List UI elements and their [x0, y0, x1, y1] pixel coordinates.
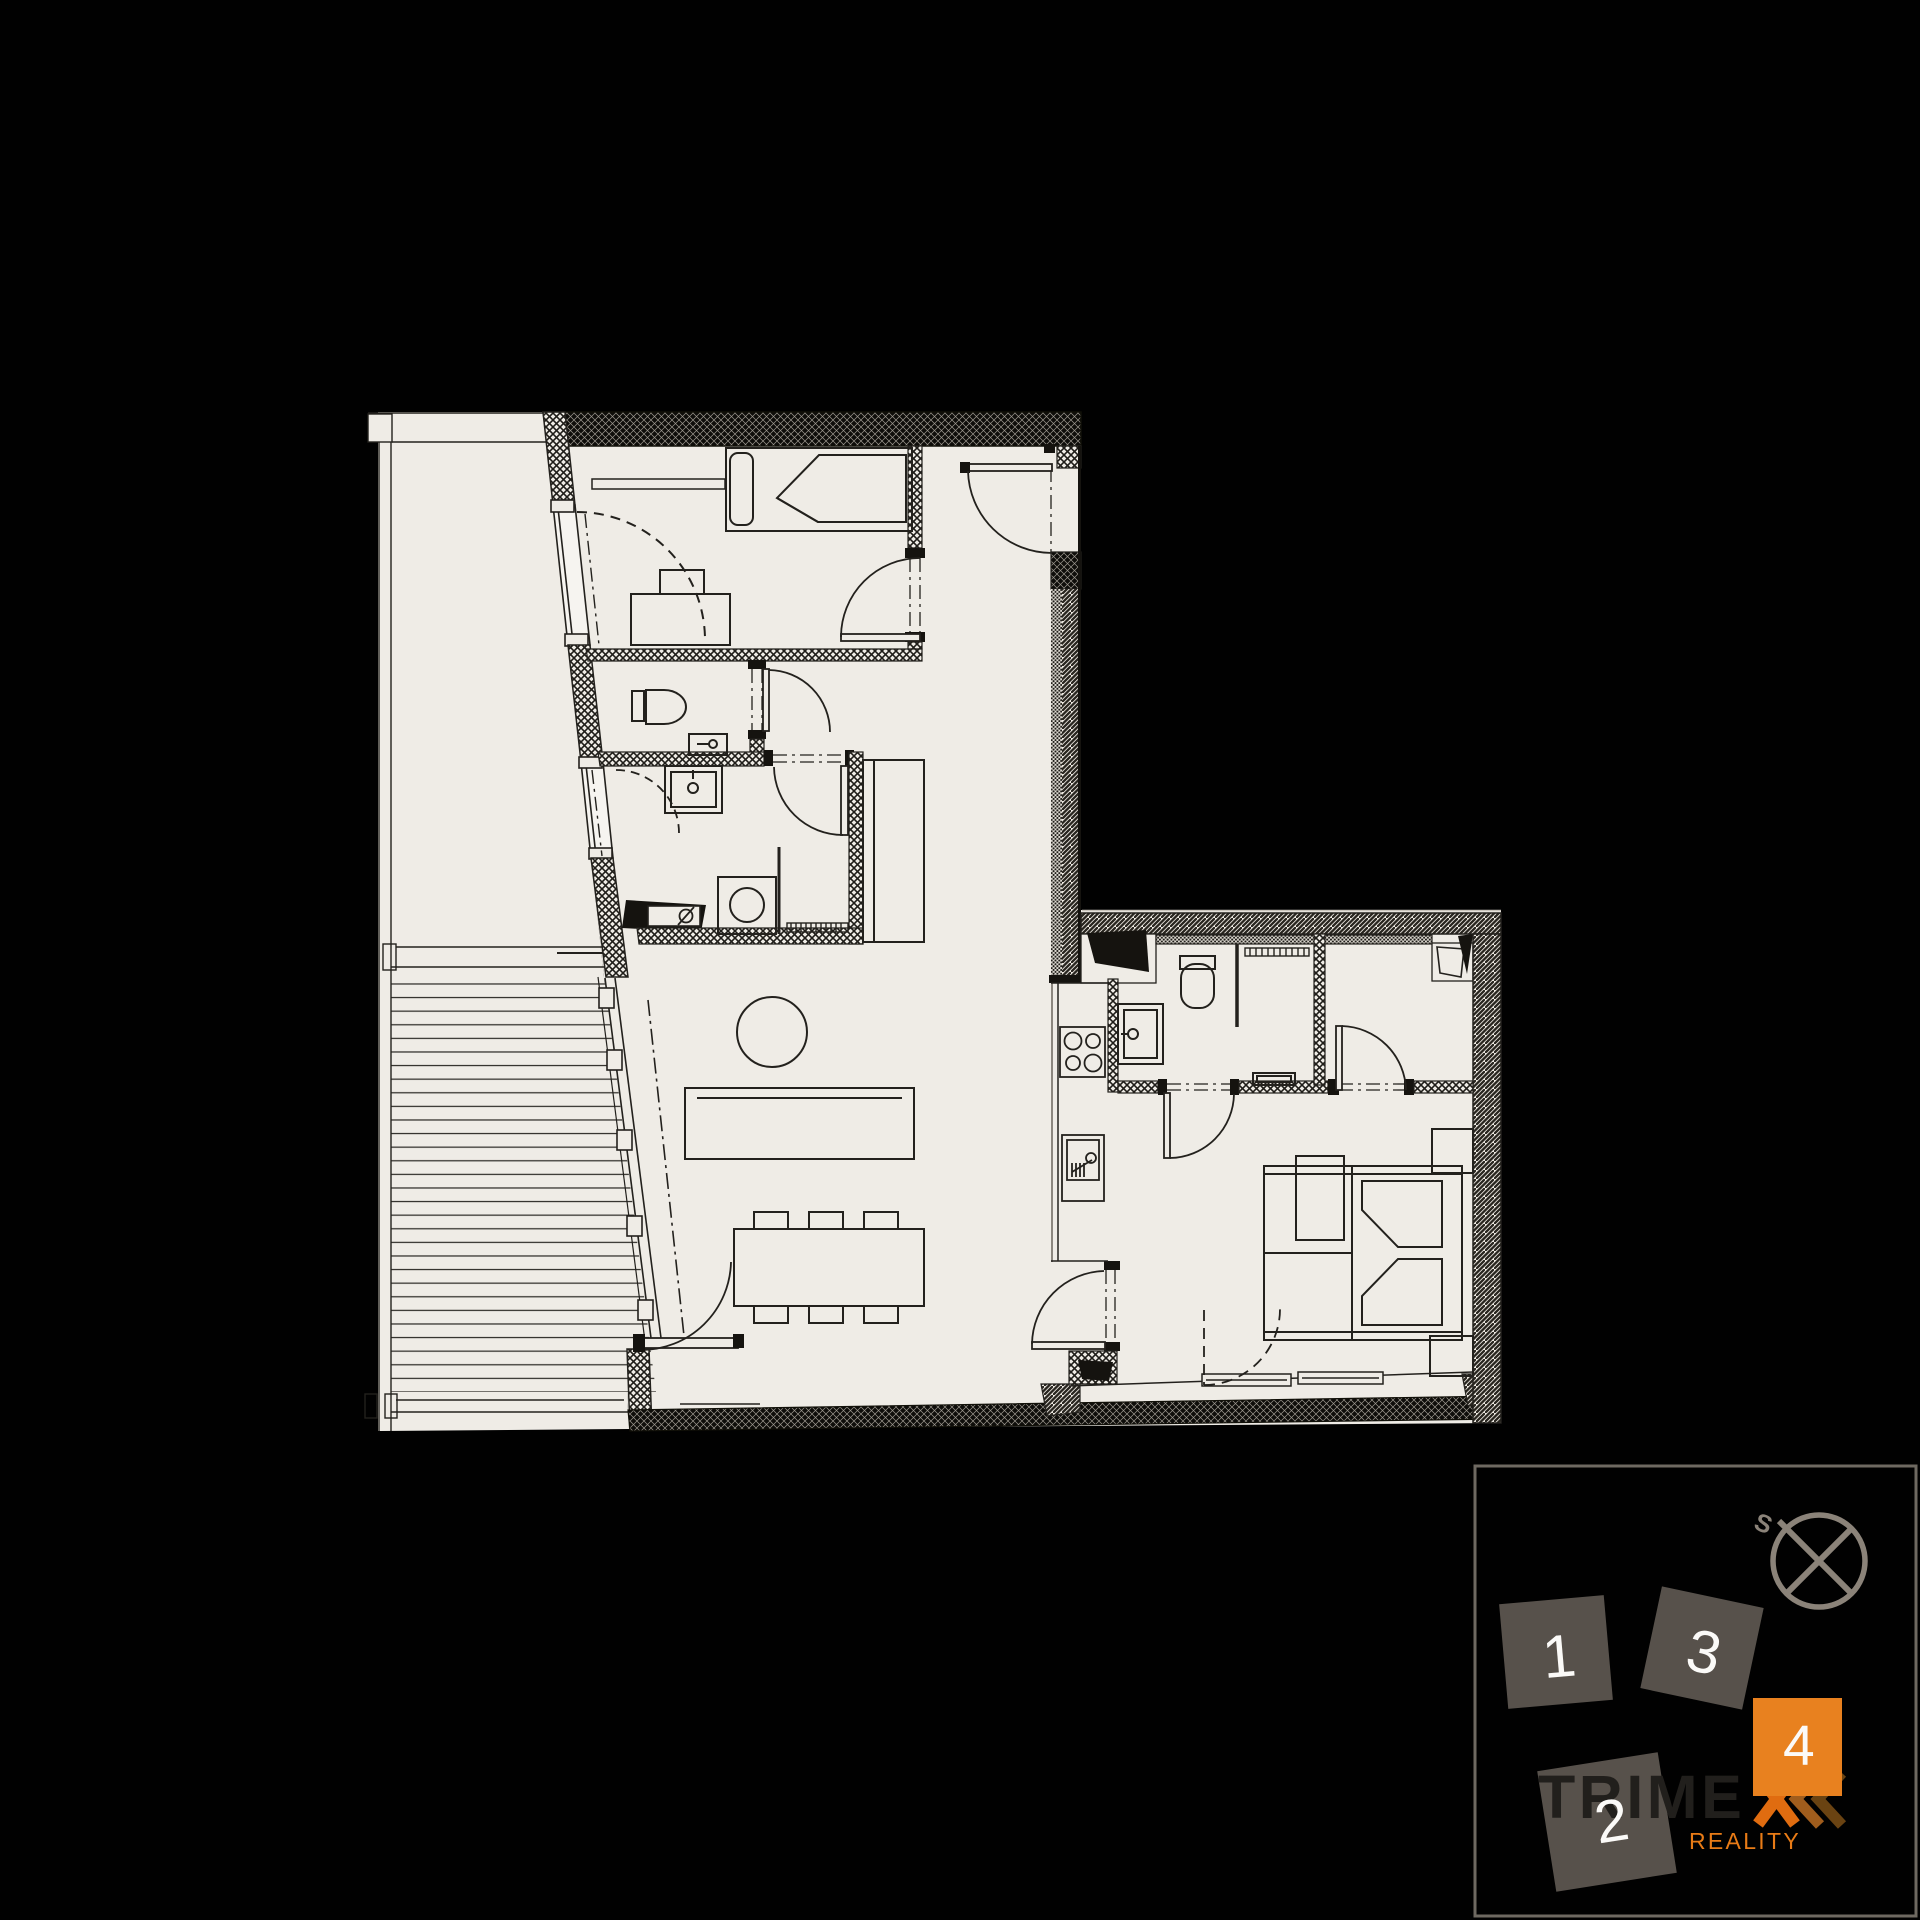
svg-text:1: 1	[1540, 1621, 1579, 1691]
svg-text:REALITY: REALITY	[1689, 1828, 1801, 1854]
svg-text:TRIME: TRIME	[1538, 1763, 1745, 1831]
svg-text:4: 4	[1783, 1714, 1815, 1778]
